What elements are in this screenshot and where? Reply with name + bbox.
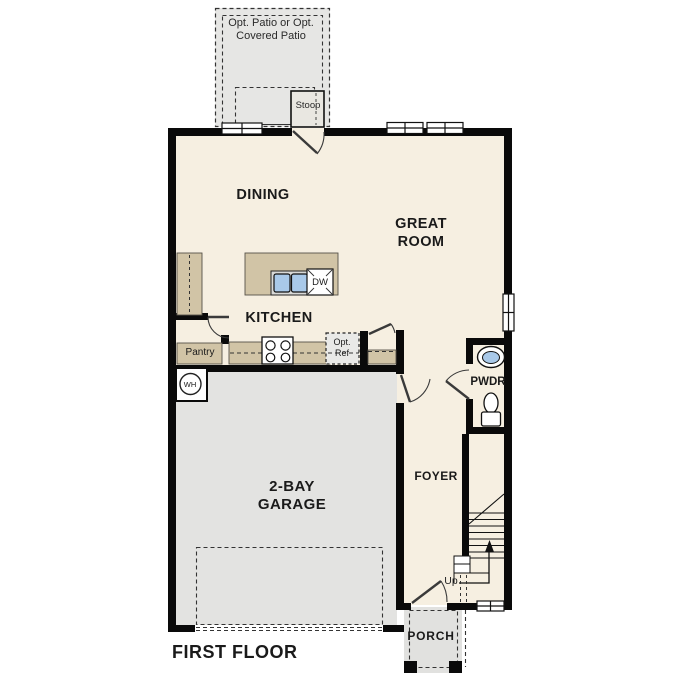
alcove-counter [368, 350, 396, 364]
patio-label: Opt. Patio or Opt. Covered Patio [218, 17, 324, 44]
dining-label: DINING [236, 187, 289, 205]
floor-plan: Opt. Patio or Opt. Covered Patio Stoop D… [0, 0, 687, 687]
great-room-label: GREAT ROOM [381, 216, 461, 251]
porch-label: PORCH [407, 629, 454, 644]
floor-title: FIRST FLOOR [172, 642, 298, 664]
range-cooktop [262, 337, 293, 364]
kitchen-label: KITCHEN [245, 310, 312, 328]
kitchen-sink [271, 271, 309, 295]
stoop-label: Stoop [296, 100, 321, 112]
powder-sink [478, 347, 505, 368]
garage-door-opening [195, 625, 383, 632]
window-right-wall [503, 294, 514, 331]
window-top-middle [387, 123, 423, 134]
window-bottom-wall [477, 601, 504, 611]
foyer-label: FOYER [414, 469, 457, 484]
window-top-right [427, 123, 463, 134]
window-top-left [222, 123, 262, 134]
water-heater-label: WH [184, 380, 197, 389]
pantry-label: Pantry [186, 347, 215, 359]
opt-ref-label: Opt. Ref [328, 337, 356, 359]
dishwasher-label: DW [312, 277, 328, 289]
garage-label: 2-BAY GARAGE [246, 478, 338, 515]
stairs-up-label: Up [444, 575, 457, 588]
powder-room-label: PWDR [470, 375, 505, 389]
